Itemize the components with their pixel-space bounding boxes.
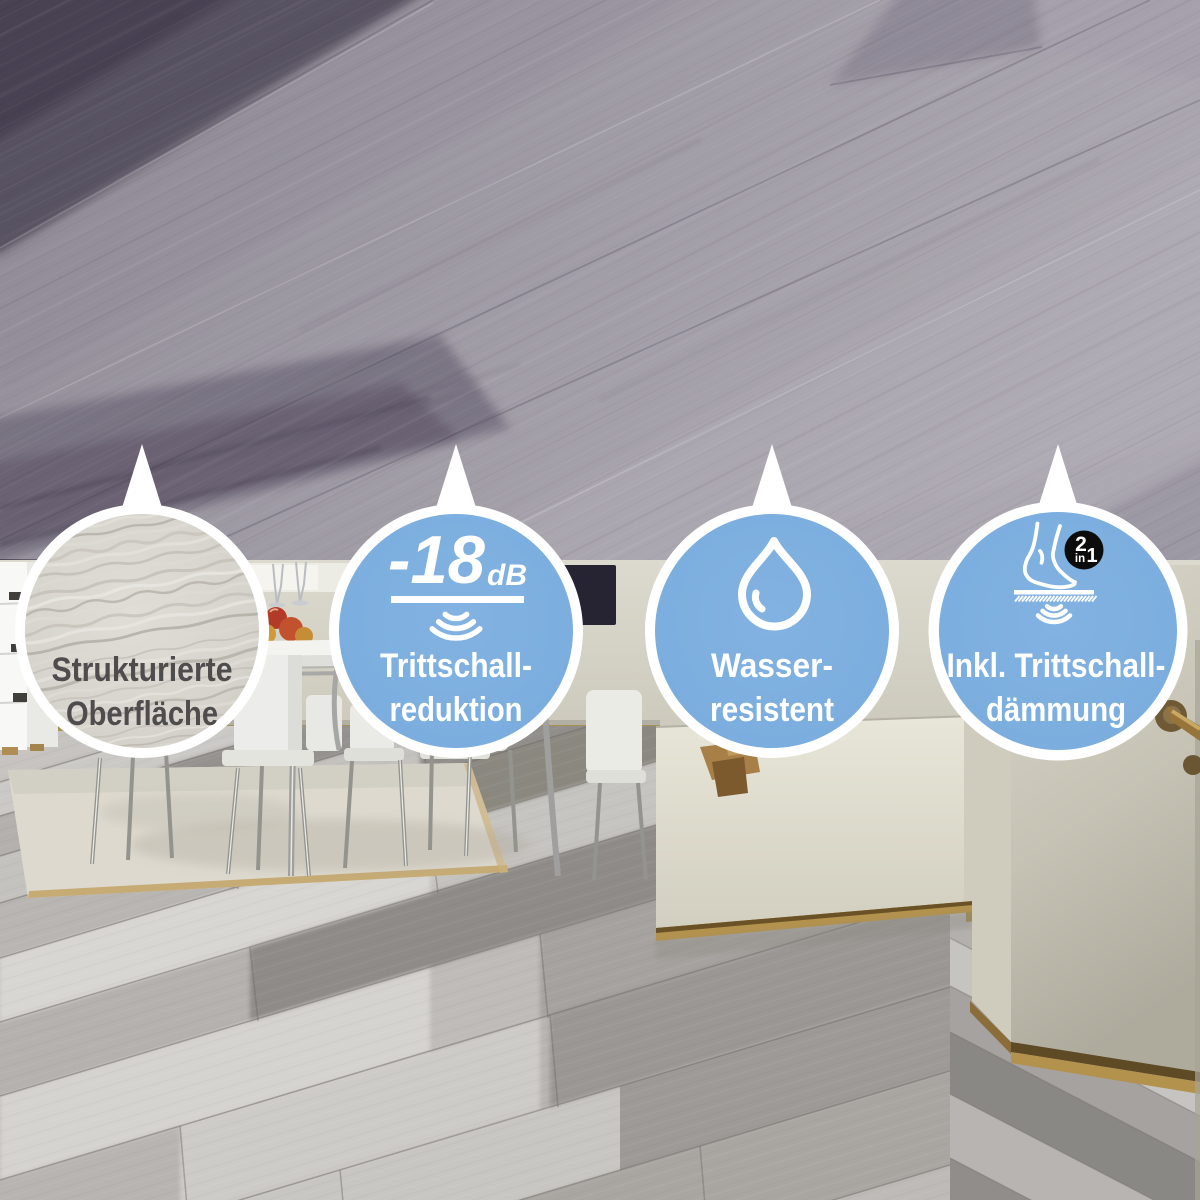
- svg-text:resistent: resistent: [710, 691, 834, 729]
- svg-text:Inkl. Trittschall-: Inkl. Trittschall-: [947, 647, 1166, 685]
- svg-text:-18: -18: [388, 522, 485, 598]
- svg-text:reduktion: reduktion: [390, 691, 523, 729]
- svg-text:dB: dB: [487, 559, 527, 592]
- svg-text:in: in: [1075, 553, 1085, 565]
- svg-text:Wasser-: Wasser-: [711, 647, 833, 685]
- svg-text:1: 1: [1086, 545, 1097, 567]
- svg-text:dämmung: dämmung: [986, 691, 1126, 729]
- svg-text:Strukturierte: Strukturierte: [52, 651, 233, 689]
- svg-text:Oberfläche: Oberfläche: [66, 695, 218, 733]
- svg-text:Trittschall-: Trittschall-: [380, 647, 532, 685]
